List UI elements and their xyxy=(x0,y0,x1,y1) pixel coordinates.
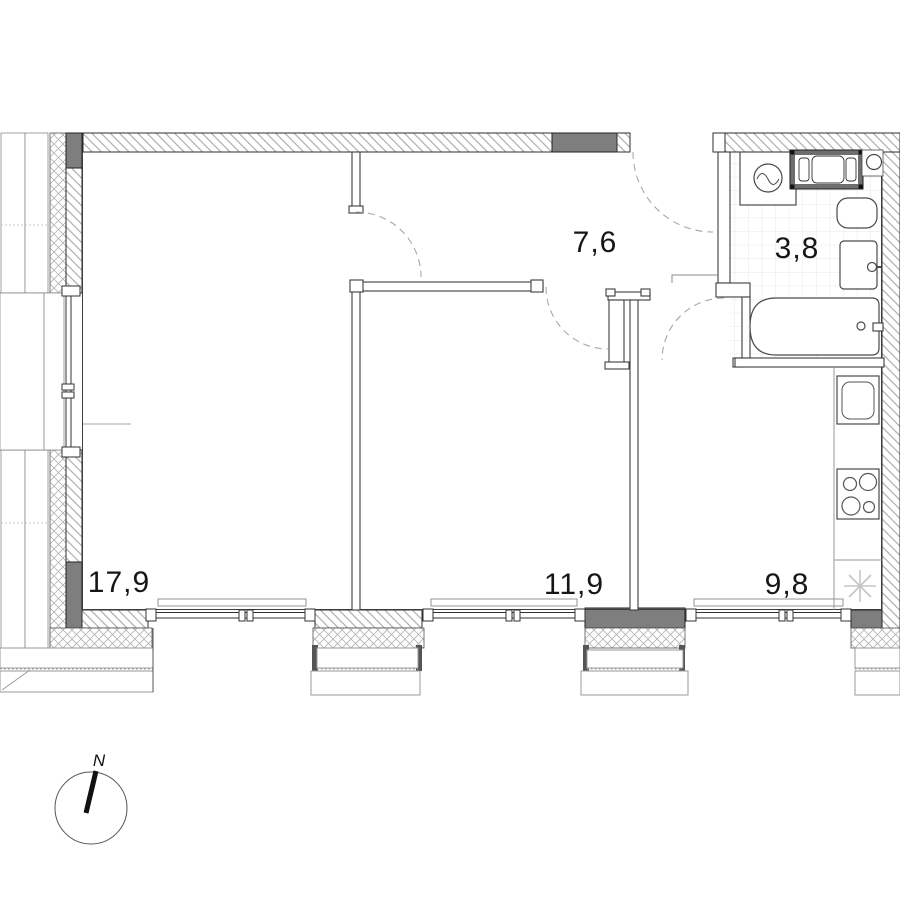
wall-living-bedroom xyxy=(352,282,360,610)
radiator xyxy=(158,599,306,606)
room-label-kitchen: 9,8 xyxy=(765,568,810,601)
kitchen-fixtures xyxy=(834,367,882,610)
wall-bedroom-top xyxy=(352,282,543,291)
door-swings xyxy=(356,152,724,360)
bath-faucet-icon xyxy=(873,323,883,331)
wall-bedroom-kitchen xyxy=(630,300,638,610)
room-label-bathroom: 3,8 xyxy=(775,232,820,265)
wall-bathroom-lintel xyxy=(716,283,750,297)
bathtub-icon xyxy=(750,298,883,355)
kitchen-sink-icon xyxy=(837,376,879,424)
window-jamb xyxy=(146,609,156,621)
room-label-living: 17,9 xyxy=(88,566,150,599)
window-jamb xyxy=(686,609,696,621)
floor-plan-canvas: 17,9 7,6 3,8 11,9 9,8 N xyxy=(0,0,900,900)
wall-living-hall-stub xyxy=(352,152,360,210)
entry-door-swing xyxy=(633,152,713,232)
window-sill-left xyxy=(0,293,44,450)
bedroom-door-swing xyxy=(546,287,608,349)
room-label-bedroom: 11,9 xyxy=(544,568,604,601)
wall-bathroom-kitchen xyxy=(735,358,884,367)
wall-bathroom-left xyxy=(718,152,730,283)
bathroom-door-swing xyxy=(662,298,724,360)
window-jamb xyxy=(841,609,851,621)
window-jamb xyxy=(423,609,433,621)
wall-bath-alcove xyxy=(742,297,750,358)
sink-basin-icon xyxy=(840,241,881,289)
window-jamb xyxy=(62,447,80,457)
zone-boundary-line xyxy=(672,275,718,283)
room-label-hall: 7,6 xyxy=(573,226,618,259)
fridge-snowflake-icon xyxy=(844,570,876,602)
north-label: N xyxy=(93,751,106,770)
round-basin-icon xyxy=(862,150,883,176)
window-jamb xyxy=(62,286,80,296)
living-room-door-swing xyxy=(356,212,421,277)
appliance-icon xyxy=(790,150,863,189)
toilet-icon xyxy=(837,198,877,228)
window-jamb xyxy=(575,609,585,621)
window-jamb xyxy=(305,609,315,621)
floor-plan-page: 17,9 7,6 3,8 11,9 9,8 N xyxy=(0,0,900,900)
washing-machine-icon xyxy=(740,152,796,205)
stove-icon xyxy=(837,469,879,519)
compass: N xyxy=(55,751,127,844)
